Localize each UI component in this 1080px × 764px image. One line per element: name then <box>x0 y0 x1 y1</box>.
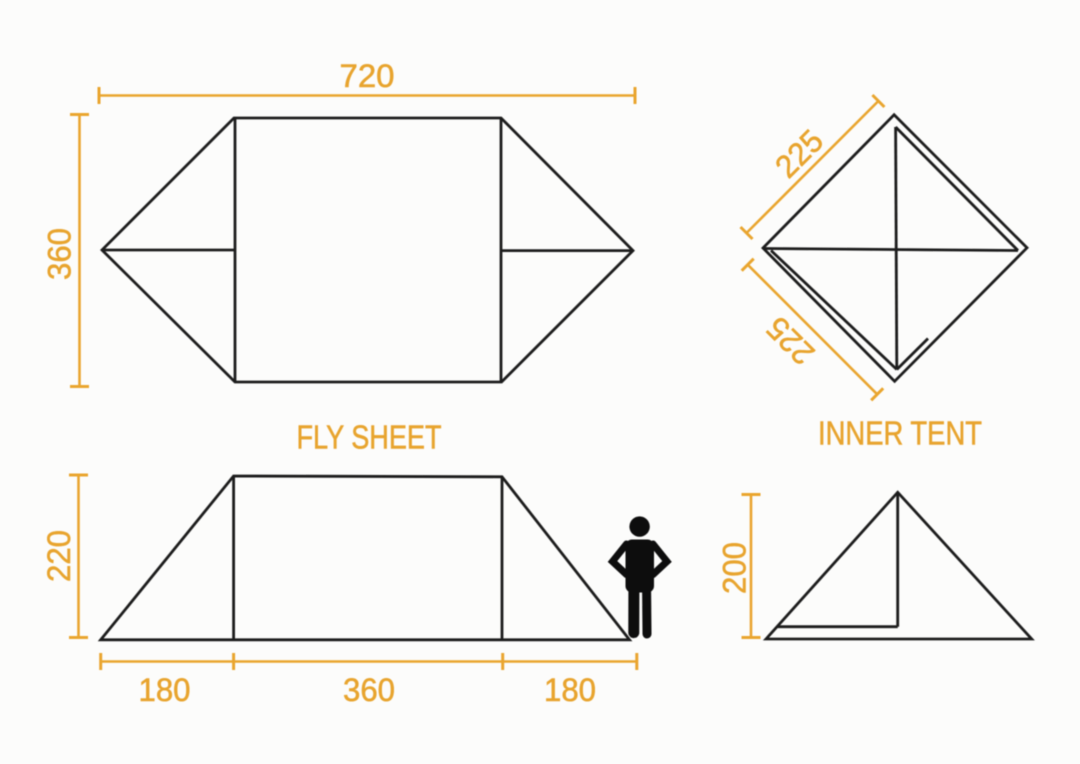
svg-text:INNER TENT: INNER TENT <box>818 415 982 452</box>
svg-text:225: 225 <box>768 122 830 184</box>
svg-text:360: 360 <box>343 672 395 708</box>
svg-text:180: 180 <box>139 672 191 708</box>
svg-text:360: 360 <box>42 228 78 280</box>
svg-text:180: 180 <box>544 672 596 708</box>
svg-text:200: 200 <box>717 542 753 594</box>
svg-text:720: 720 <box>340 58 395 94</box>
svg-text:225: 225 <box>759 310 821 372</box>
svg-text:220: 220 <box>41 530 77 582</box>
svg-text:FLY SHEET: FLY SHEET <box>297 419 442 456</box>
